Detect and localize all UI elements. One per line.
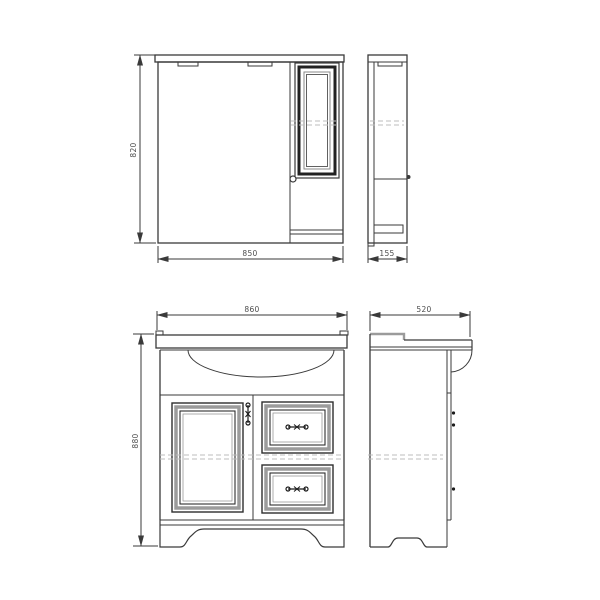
- dimension-label-820: 820: [129, 142, 138, 157]
- technical-drawing-sheet: 820 850 155: [0, 0, 600, 600]
- dimension-label-860: 860: [244, 305, 259, 314]
- bottom-step: [368, 243, 374, 246]
- mirror-body-outline: [158, 62, 343, 243]
- vanity-side-view: 520: [368, 305, 472, 547]
- door-frame-gray: [176, 407, 239, 508]
- dimension-vanity-height: 880: [131, 334, 158, 546]
- door-frame-inner: [180, 411, 235, 504]
- dimension-mirror-height: 820: [129, 55, 156, 243]
- dimension-vanity-depth: 520: [370, 305, 470, 337]
- dimension-label-880: 880: [131, 433, 140, 448]
- drawer-handle-ornate: [286, 487, 308, 492]
- dimension-label-155: 155: [379, 249, 394, 258]
- basin-profile-arc: [451, 350, 472, 372]
- bottom-foot-cutout: [370, 538, 447, 547]
- mirror-cabinet-front-view: 820 850: [129, 55, 344, 263]
- mirror-top-rail: [155, 55, 344, 62]
- door-knob: [290, 176, 296, 182]
- countertop: [156, 335, 347, 348]
- basin-arc: [188, 350, 334, 377]
- apron-feet-outline: [160, 520, 344, 547]
- vanity-door: [172, 403, 243, 512]
- door-handle-ornate: [246, 403, 251, 425]
- door-panel: [183, 414, 232, 501]
- backsplash-profile: [370, 334, 404, 340]
- handle-profile-dot: [452, 487, 455, 490]
- drawing-svg: 820 850 155: [0, 0, 600, 600]
- drawer-handle-ornate: [286, 425, 308, 430]
- light-fixture: [378, 62, 402, 66]
- vanity-front-view: 860 880: [131, 305, 348, 547]
- dimension-mirror-width: 850: [158, 246, 343, 263]
- dimension-mirror-depth: 155: [368, 246, 407, 263]
- dimension-vanity-width: 860: [157, 305, 347, 330]
- dimension-label-520: 520: [416, 305, 431, 314]
- open-shelf-profile: [374, 225, 403, 233]
- door-knob-profile: [407, 175, 411, 179]
- handle-profile-dot: [452, 411, 455, 414]
- dimension-label-850: 850: [242, 249, 257, 258]
- handle-profile-dot: [452, 423, 455, 426]
- mirror-cabinet-side-view: 155: [368, 55, 411, 263]
